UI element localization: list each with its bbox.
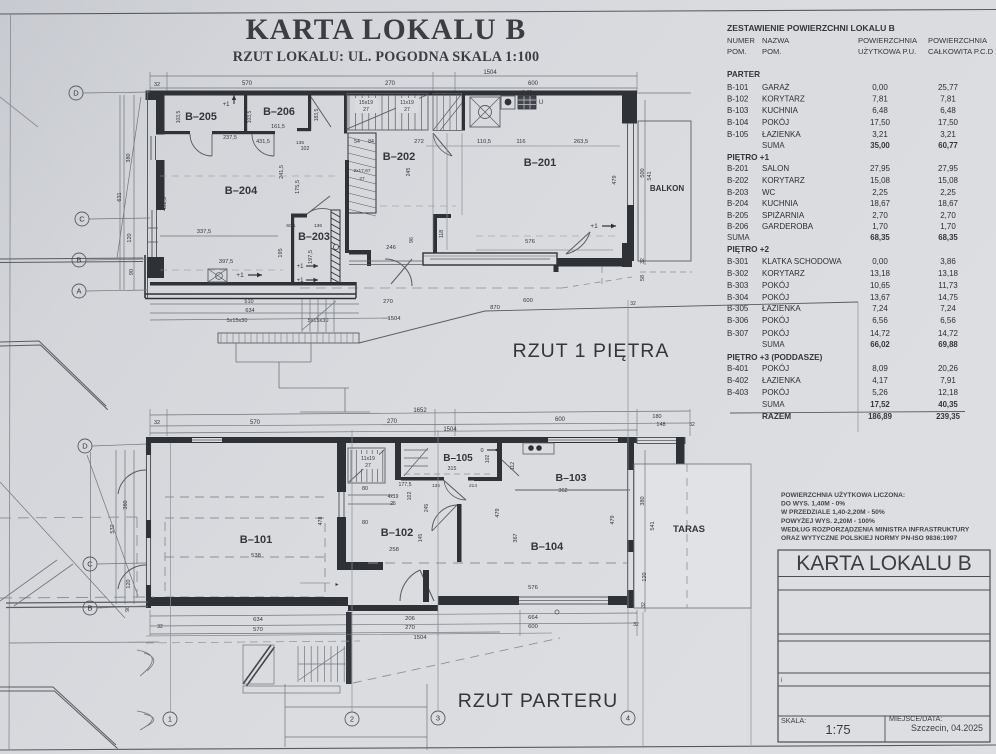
svg-text:576: 576 bbox=[528, 585, 538, 591]
svg-text:32: 32 bbox=[630, 301, 636, 307]
svg-text:14,75: 14,75 bbox=[938, 293, 959, 302]
svg-text:80: 80 bbox=[362, 486, 368, 492]
svg-text:6,56: 6,56 bbox=[940, 316, 956, 325]
svg-text:15,08: 15,08 bbox=[938, 176, 959, 185]
svg-text:258: 258 bbox=[389, 547, 399, 553]
svg-text:WEDŁUG ROZPORZĄDZENIA MINISTRA: WEDŁUG ROZPORZĄDZENIA MINISTRA INFRASTRU… bbox=[781, 526, 970, 533]
svg-text:337,5: 337,5 bbox=[197, 229, 212, 235]
svg-text:17,50: 17,50 bbox=[870, 118, 891, 127]
svg-text:397,5: 397,5 bbox=[219, 259, 234, 265]
svg-text:SKALA:: SKALA: bbox=[781, 716, 806, 725]
svg-text:12,18: 12,18 bbox=[938, 388, 959, 397]
svg-text:4x19: 4x19 bbox=[388, 494, 399, 500]
svg-text:POKÓJ: POKÓJ bbox=[762, 281, 789, 290]
svg-text:KORYTARZ: KORYTARZ bbox=[762, 176, 805, 185]
svg-text:380: 380 bbox=[640, 496, 646, 505]
svg-text:362: 362 bbox=[558, 488, 567, 494]
svg-text:SUMA: SUMA bbox=[762, 340, 785, 349]
svg-text:6,48: 6,48 bbox=[872, 106, 888, 115]
svg-text:+1: +1 bbox=[590, 223, 598, 230]
svg-text:27: 27 bbox=[363, 107, 369, 113]
svg-text:7,81: 7,81 bbox=[872, 95, 888, 104]
svg-text:180: 180 bbox=[652, 414, 661, 420]
svg-text:KARTA LOKALU B: KARTA LOKALU B bbox=[246, 14, 527, 46]
svg-text:118: 118 bbox=[439, 230, 445, 238]
svg-text:B-301: B-301 bbox=[727, 257, 749, 266]
svg-text:i: i bbox=[781, 678, 782, 684]
svg-text:197,5: 197,5 bbox=[308, 250, 314, 264]
svg-text:B–105: B–105 bbox=[443, 453, 473, 464]
svg-text:367: 367 bbox=[513, 533, 519, 542]
svg-text:102: 102 bbox=[301, 146, 310, 152]
svg-text:B–205: B–205 bbox=[185, 111, 217, 123]
svg-text:1504: 1504 bbox=[483, 70, 497, 76]
svg-text:PARTER: PARTER bbox=[727, 70, 760, 79]
svg-text:3,86: 3,86 bbox=[940, 257, 956, 266]
svg-text:600: 600 bbox=[523, 298, 533, 304]
svg-text:KARTA LOKALU B: KARTA LOKALU B bbox=[796, 552, 971, 575]
svg-text:B–204: B–204 bbox=[225, 185, 258, 197]
svg-text:SUMA: SUMA bbox=[762, 400, 785, 409]
svg-text:ŁAZIENKA: ŁAZIENKA bbox=[762, 376, 801, 385]
svg-text:ORAZ WYTYCZNE POLSKIEJ NORMY P: ORAZ WYTYCZNE POLSKIEJ NORMY PN-ISO 9836… bbox=[781, 535, 957, 542]
svg-text:B-104: B-104 bbox=[727, 118, 749, 127]
svg-text:B-205: B-205 bbox=[727, 211, 749, 220]
svg-text:500: 500 bbox=[640, 168, 646, 177]
svg-text:PIĘTRO +3 (PODDASZE): PIĘTRO +3 (PODDASZE) bbox=[727, 353, 823, 362]
svg-text:POKÓJ: POKÓJ bbox=[762, 329, 789, 338]
svg-text:120: 120 bbox=[126, 579, 132, 588]
svg-text:KORYTARZ: KORYTARZ bbox=[762, 269, 805, 278]
svg-text:B-302: B-302 bbox=[727, 269, 749, 278]
svg-text:15,08: 15,08 bbox=[870, 176, 891, 185]
svg-text:479: 479 bbox=[612, 175, 618, 184]
svg-text:103,5: 103,5 bbox=[176, 111, 182, 124]
svg-text:POWYŻEJ WYS. 2,20M - 100%: POWYŻEJ WYS. 2,20M - 100% bbox=[781, 517, 875, 525]
svg-text:Szczecin, 04.2025: Szczecin, 04.2025 bbox=[911, 723, 983, 733]
svg-text:245: 245 bbox=[406, 168, 412, 177]
svg-text:ŁAZIENKA: ŁAZIENKA bbox=[762, 130, 801, 139]
svg-text:0: 0 bbox=[480, 448, 483, 454]
svg-text:27,95: 27,95 bbox=[870, 164, 891, 173]
svg-text:B-102: B-102 bbox=[727, 95, 749, 104]
svg-text:+1: +1 bbox=[297, 264, 305, 270]
svg-text:1: 1 bbox=[168, 715, 172, 724]
svg-text:RZUT 1 PIĘTRA: RZUT 1 PIĘTRA bbox=[513, 340, 670, 362]
svg-text:B: B bbox=[76, 256, 81, 265]
svg-text:2: 2 bbox=[350, 715, 354, 724]
svg-text:510: 510 bbox=[244, 299, 253, 305]
svg-text:PIĘTRO +1: PIĘTRO +1 bbox=[727, 153, 770, 162]
svg-text:270: 270 bbox=[387, 419, 398, 425]
svg-text:1:75: 1:75 bbox=[825, 722, 850, 737]
svg-text:206: 206 bbox=[405, 616, 415, 622]
svg-text:90: 90 bbox=[129, 269, 135, 275]
svg-text:32: 32 bbox=[157, 624, 163, 630]
svg-text:14,72: 14,72 bbox=[938, 329, 959, 338]
svg-text:177,5: 177,5 bbox=[399, 482, 412, 488]
svg-text:B–102: B–102 bbox=[381, 527, 413, 539]
svg-text:GARDEROBA: GARDEROBA bbox=[762, 222, 814, 231]
svg-text:POKÓJ: POKÓJ bbox=[762, 293, 789, 302]
svg-text:POM.: POM. bbox=[727, 47, 746, 56]
svg-text:110,5: 110,5 bbox=[477, 139, 491, 145]
svg-text:120: 120 bbox=[127, 233, 133, 242]
svg-text:245: 245 bbox=[424, 504, 430, 513]
svg-text:RZUT PARTERU: RZUT PARTERU bbox=[458, 690, 618, 712]
svg-text:2,70: 2,70 bbox=[940, 211, 956, 220]
svg-text:10,65: 10,65 bbox=[870, 281, 891, 290]
svg-text:246: 246 bbox=[386, 245, 396, 251]
svg-text:40,35: 40,35 bbox=[938, 400, 958, 409]
svg-text:W PRZEDZIALE 1,40-2,20M - 50%: W PRZEDZIALE 1,40-2,20M - 50% bbox=[781, 509, 885, 516]
svg-text:WC: WC bbox=[762, 188, 776, 197]
svg-text:0,00: 0,00 bbox=[872, 83, 888, 92]
svg-text:B-306: B-306 bbox=[727, 316, 749, 325]
svg-text:13,18: 13,18 bbox=[938, 269, 959, 278]
svg-text:479: 479 bbox=[610, 515, 616, 524]
svg-text:600: 600 bbox=[528, 624, 538, 630]
svg-text:B–104: B–104 bbox=[531, 541, 564, 553]
svg-text:B–206: B–206 bbox=[263, 106, 295, 118]
svg-text:RZUT LOKALU: UL. POGODNA SKALA: RZUT LOKALU: UL. POGODNA SKALA 1:100 bbox=[233, 49, 540, 65]
svg-text:20,26: 20,26 bbox=[938, 364, 959, 373]
svg-text:8,09: 8,09 bbox=[872, 364, 888, 373]
svg-text:B-203: B-203 bbox=[727, 188, 749, 197]
svg-text:103,5: 103,5 bbox=[247, 111, 253, 124]
svg-text:634: 634 bbox=[253, 617, 263, 623]
svg-text:263,5: 263,5 bbox=[574, 139, 589, 145]
svg-text:+1: +1 bbox=[236, 272, 244, 279]
svg-text:68,35: 68,35 bbox=[938, 233, 958, 242]
svg-text:870: 870 bbox=[490, 305, 500, 311]
svg-text:183,5: 183,5 bbox=[314, 109, 320, 122]
svg-text:631: 631 bbox=[117, 192, 123, 201]
svg-text:214: 214 bbox=[469, 483, 477, 489]
svg-text:538: 538 bbox=[251, 553, 261, 559]
svg-text:135: 135 bbox=[432, 483, 440, 489]
svg-text:BALKON: BALKON bbox=[650, 184, 684, 193]
svg-text:32: 32 bbox=[633, 622, 639, 628]
svg-text:479: 479 bbox=[495, 508, 501, 517]
svg-text:2,25: 2,25 bbox=[940, 188, 956, 197]
svg-text:POKÓJ: POKÓJ bbox=[762, 388, 789, 397]
svg-text:B-201: B-201 bbox=[727, 164, 749, 173]
svg-text:1,70: 1,70 bbox=[940, 222, 956, 231]
svg-text:B-204: B-204 bbox=[727, 199, 749, 208]
svg-text:120: 120 bbox=[642, 572, 648, 581]
svg-text:2x17,67: 2x17,67 bbox=[353, 168, 370, 174]
svg-text:570: 570 bbox=[250, 420, 261, 426]
svg-text:68,35: 68,35 bbox=[870, 233, 890, 242]
svg-text:541: 541 bbox=[650, 521, 656, 530]
svg-text:1504: 1504 bbox=[388, 316, 402, 322]
svg-text:4: 4 bbox=[626, 714, 630, 723]
svg-text:POWIERZCHNIA: POWIERZCHNIA bbox=[858, 36, 918, 45]
svg-text:431,5: 431,5 bbox=[256, 139, 270, 145]
svg-text:KLATKA SCHODOWA: KLATKA SCHODOWA bbox=[762, 257, 842, 266]
svg-text:RAZEM: RAZEM bbox=[762, 412, 791, 421]
svg-text:1,70: 1,70 bbox=[872, 222, 888, 231]
svg-text:B-401: B-401 bbox=[727, 364, 749, 373]
svg-text:B: B bbox=[87, 604, 92, 613]
svg-text:C: C bbox=[79, 215, 85, 224]
svg-text:B-105: B-105 bbox=[727, 130, 749, 139]
svg-text:6,56: 6,56 bbox=[872, 316, 888, 325]
svg-text:27: 27 bbox=[359, 176, 365, 182]
svg-text:60,1: 60,1 bbox=[286, 223, 296, 229]
svg-text:17,52: 17,52 bbox=[870, 400, 890, 409]
svg-text:60,77: 60,77 bbox=[938, 141, 958, 150]
svg-text:7,24: 7,24 bbox=[940, 304, 956, 313]
svg-text:17,50: 17,50 bbox=[938, 118, 959, 127]
svg-text:135: 135 bbox=[296, 140, 304, 146]
svg-text:13,18: 13,18 bbox=[870, 269, 891, 278]
svg-text:1504: 1504 bbox=[414, 635, 428, 641]
svg-text:54: 54 bbox=[354, 139, 360, 145]
svg-text:PIĘTRO +2: PIĘTRO +2 bbox=[727, 245, 770, 254]
svg-text:27: 27 bbox=[404, 107, 410, 113]
svg-text:GARAŻ: GARAŻ bbox=[762, 83, 790, 92]
svg-text:237,5: 237,5 bbox=[223, 135, 237, 141]
svg-text:CAŁKOWITA P.C.D: CAŁKOWITA P.C.D bbox=[928, 47, 994, 56]
svg-text:B–202: B–202 bbox=[383, 151, 415, 163]
svg-text:B-303: B-303 bbox=[727, 281, 749, 290]
svg-text:POKÓJ: POKÓJ bbox=[762, 118, 789, 127]
svg-text:58: 58 bbox=[640, 275, 646, 281]
svg-text:102: 102 bbox=[485, 455, 491, 464]
svg-text:B-403: B-403 bbox=[727, 388, 749, 397]
svg-text:NAZWA: NAZWA bbox=[762, 36, 790, 45]
svg-text:POWIERZCHNIA: POWIERZCHNIA bbox=[928, 36, 988, 45]
svg-text:B–103: B–103 bbox=[556, 472, 587, 484]
svg-text:NUMER: NUMER bbox=[727, 36, 755, 45]
svg-text:18,67: 18,67 bbox=[938, 199, 959, 208]
svg-text:27: 27 bbox=[365, 463, 371, 469]
svg-text:TARAS: TARAS bbox=[673, 524, 705, 535]
svg-text:32: 32 bbox=[641, 602, 647, 608]
svg-text:66,02: 66,02 bbox=[870, 340, 890, 349]
svg-text:D: D bbox=[73, 89, 79, 98]
svg-text:▸: ▸ bbox=[335, 582, 338, 588]
svg-text:11x19: 11x19 bbox=[400, 100, 414, 106]
svg-text:7,91: 7,91 bbox=[940, 376, 956, 385]
svg-text:145: 145 bbox=[418, 534, 424, 543]
svg-text:380: 380 bbox=[123, 500, 129, 509]
svg-text:B-202: B-202 bbox=[727, 176, 749, 185]
svg-text:270: 270 bbox=[383, 299, 393, 305]
svg-text:SUMA: SUMA bbox=[762, 141, 785, 150]
svg-text:DO WYS. 1,40M - 0%: DO WYS. 1,40M - 0% bbox=[781, 501, 845, 508]
svg-text:18,67: 18,67 bbox=[870, 199, 891, 208]
svg-text:241,5: 241,5 bbox=[279, 165, 285, 179]
svg-text:3,21: 3,21 bbox=[940, 130, 956, 139]
svg-text:541: 541 bbox=[647, 171, 653, 180]
svg-text:32: 32 bbox=[154, 82, 160, 88]
svg-text:239,35: 239,35 bbox=[936, 412, 961, 421]
svg-text:POKÓJ: POKÓJ bbox=[762, 316, 789, 325]
svg-text:UŻYTKOWA P.U.: UŻYTKOWA P.U. bbox=[858, 47, 916, 56]
svg-text:SALON: SALON bbox=[762, 164, 789, 173]
svg-text:315: 315 bbox=[448, 466, 457, 472]
svg-text:B–101: B–101 bbox=[240, 534, 272, 546]
svg-text:2x60: 2x60 bbox=[522, 89, 532, 94]
svg-text:270: 270 bbox=[405, 625, 415, 631]
svg-text:14,72: 14,72 bbox=[870, 329, 891, 338]
svg-text:69,88: 69,88 bbox=[938, 340, 958, 349]
svg-text:B-304: B-304 bbox=[727, 293, 749, 302]
svg-text:3: 3 bbox=[436, 714, 440, 723]
svg-text:136: 136 bbox=[314, 223, 322, 229]
svg-text:2,70: 2,70 bbox=[872, 211, 888, 220]
svg-text:+1: +1 bbox=[223, 102, 231, 108]
svg-text:11,73: 11,73 bbox=[938, 281, 958, 290]
svg-text:80: 80 bbox=[362, 520, 368, 526]
svg-text:35,00: 35,00 bbox=[870, 141, 890, 150]
svg-text:U: U bbox=[539, 100, 543, 106]
svg-text:84: 84 bbox=[368, 139, 374, 145]
svg-text:POM.: POM. bbox=[762, 47, 781, 56]
svg-text:KUCHNIA: KUCHNIA bbox=[762, 199, 799, 208]
svg-text:15x19: 15x19 bbox=[359, 100, 373, 106]
svg-text:C: C bbox=[87, 560, 93, 569]
svg-text:25: 25 bbox=[390, 501, 396, 507]
svg-text:270: 270 bbox=[385, 81, 396, 87]
svg-text:27,95: 27,95 bbox=[938, 164, 959, 173]
svg-text:13,67: 13,67 bbox=[870, 293, 891, 302]
svg-text:+1: +1 bbox=[297, 278, 305, 284]
svg-text:161,5: 161,5 bbox=[271, 124, 285, 130]
svg-text:B-101: B-101 bbox=[727, 83, 749, 92]
svg-text:96: 96 bbox=[409, 237, 415, 243]
svg-text:2,25: 2,25 bbox=[872, 188, 888, 197]
svg-text:SPIŻARNIA: SPIŻARNIA bbox=[762, 211, 805, 220]
svg-text:D: D bbox=[82, 442, 88, 451]
svg-text:SUMA: SUMA bbox=[727, 233, 750, 242]
svg-text:B-206: B-206 bbox=[727, 222, 749, 231]
svg-text:11x19: 11x19 bbox=[361, 456, 375, 462]
svg-text:5,26: 5,26 bbox=[872, 388, 888, 397]
svg-text:600: 600 bbox=[555, 417, 566, 423]
svg-text:195: 195 bbox=[278, 248, 284, 257]
svg-text:MIEJSCE/DATA:: MIEJSCE/DATA: bbox=[889, 714, 942, 723]
svg-text:4,17: 4,17 bbox=[872, 376, 888, 385]
svg-text:25,77: 25,77 bbox=[938, 83, 959, 92]
svg-text:7,24: 7,24 bbox=[872, 304, 888, 313]
svg-text:570: 570 bbox=[253, 627, 263, 633]
svg-text:576: 576 bbox=[525, 239, 535, 245]
svg-text:POWIERZCHNIA UŻYTKOWA LICZONA:: POWIERZCHNIA UŻYTKOWA LICZONA: bbox=[781, 491, 905, 499]
svg-text:B-307: B-307 bbox=[727, 329, 749, 338]
svg-text:B-402: B-402 bbox=[727, 376, 749, 385]
svg-text:B-103: B-103 bbox=[727, 106, 749, 115]
svg-text:116: 116 bbox=[516, 139, 525, 145]
svg-text:0,00: 0,00 bbox=[872, 257, 888, 266]
svg-text:175,5: 175,5 bbox=[295, 180, 301, 194]
svg-text:6,48: 6,48 bbox=[940, 106, 956, 115]
svg-text:POKÓJ: POKÓJ bbox=[762, 364, 789, 373]
svg-text:570: 570 bbox=[242, 81, 253, 87]
svg-text:102: 102 bbox=[407, 492, 413, 501]
svg-text:478: 478 bbox=[318, 517, 324, 526]
svg-text:32: 32 bbox=[154, 420, 160, 426]
svg-text:186,89: 186,89 bbox=[868, 412, 893, 421]
svg-text:KORYTARZ: KORYTARZ bbox=[762, 95, 805, 104]
svg-text:3,21: 3,21 bbox=[872, 130, 888, 139]
svg-text:A: A bbox=[76, 287, 81, 296]
svg-text:B–201: B–201 bbox=[524, 157, 556, 169]
svg-text:ŁAZIENKA: ŁAZIENKA bbox=[762, 304, 801, 313]
svg-text:B–203: B–203 bbox=[298, 231, 330, 243]
svg-text:KUCHNIA: KUCHNIA bbox=[762, 106, 799, 115]
svg-text:664: 664 bbox=[528, 615, 538, 621]
svg-text:ZESTAWIENIE POWIERZCHNI LOKALU: ZESTAWIENIE POWIERZCHNI LOKALU B bbox=[727, 23, 895, 33]
svg-text:600: 600 bbox=[528, 81, 539, 87]
svg-text:272: 272 bbox=[414, 139, 424, 145]
svg-text:1652: 1652 bbox=[413, 408, 427, 414]
svg-text:7,81: 7,81 bbox=[940, 95, 956, 104]
svg-text:148: 148 bbox=[656, 422, 665, 428]
